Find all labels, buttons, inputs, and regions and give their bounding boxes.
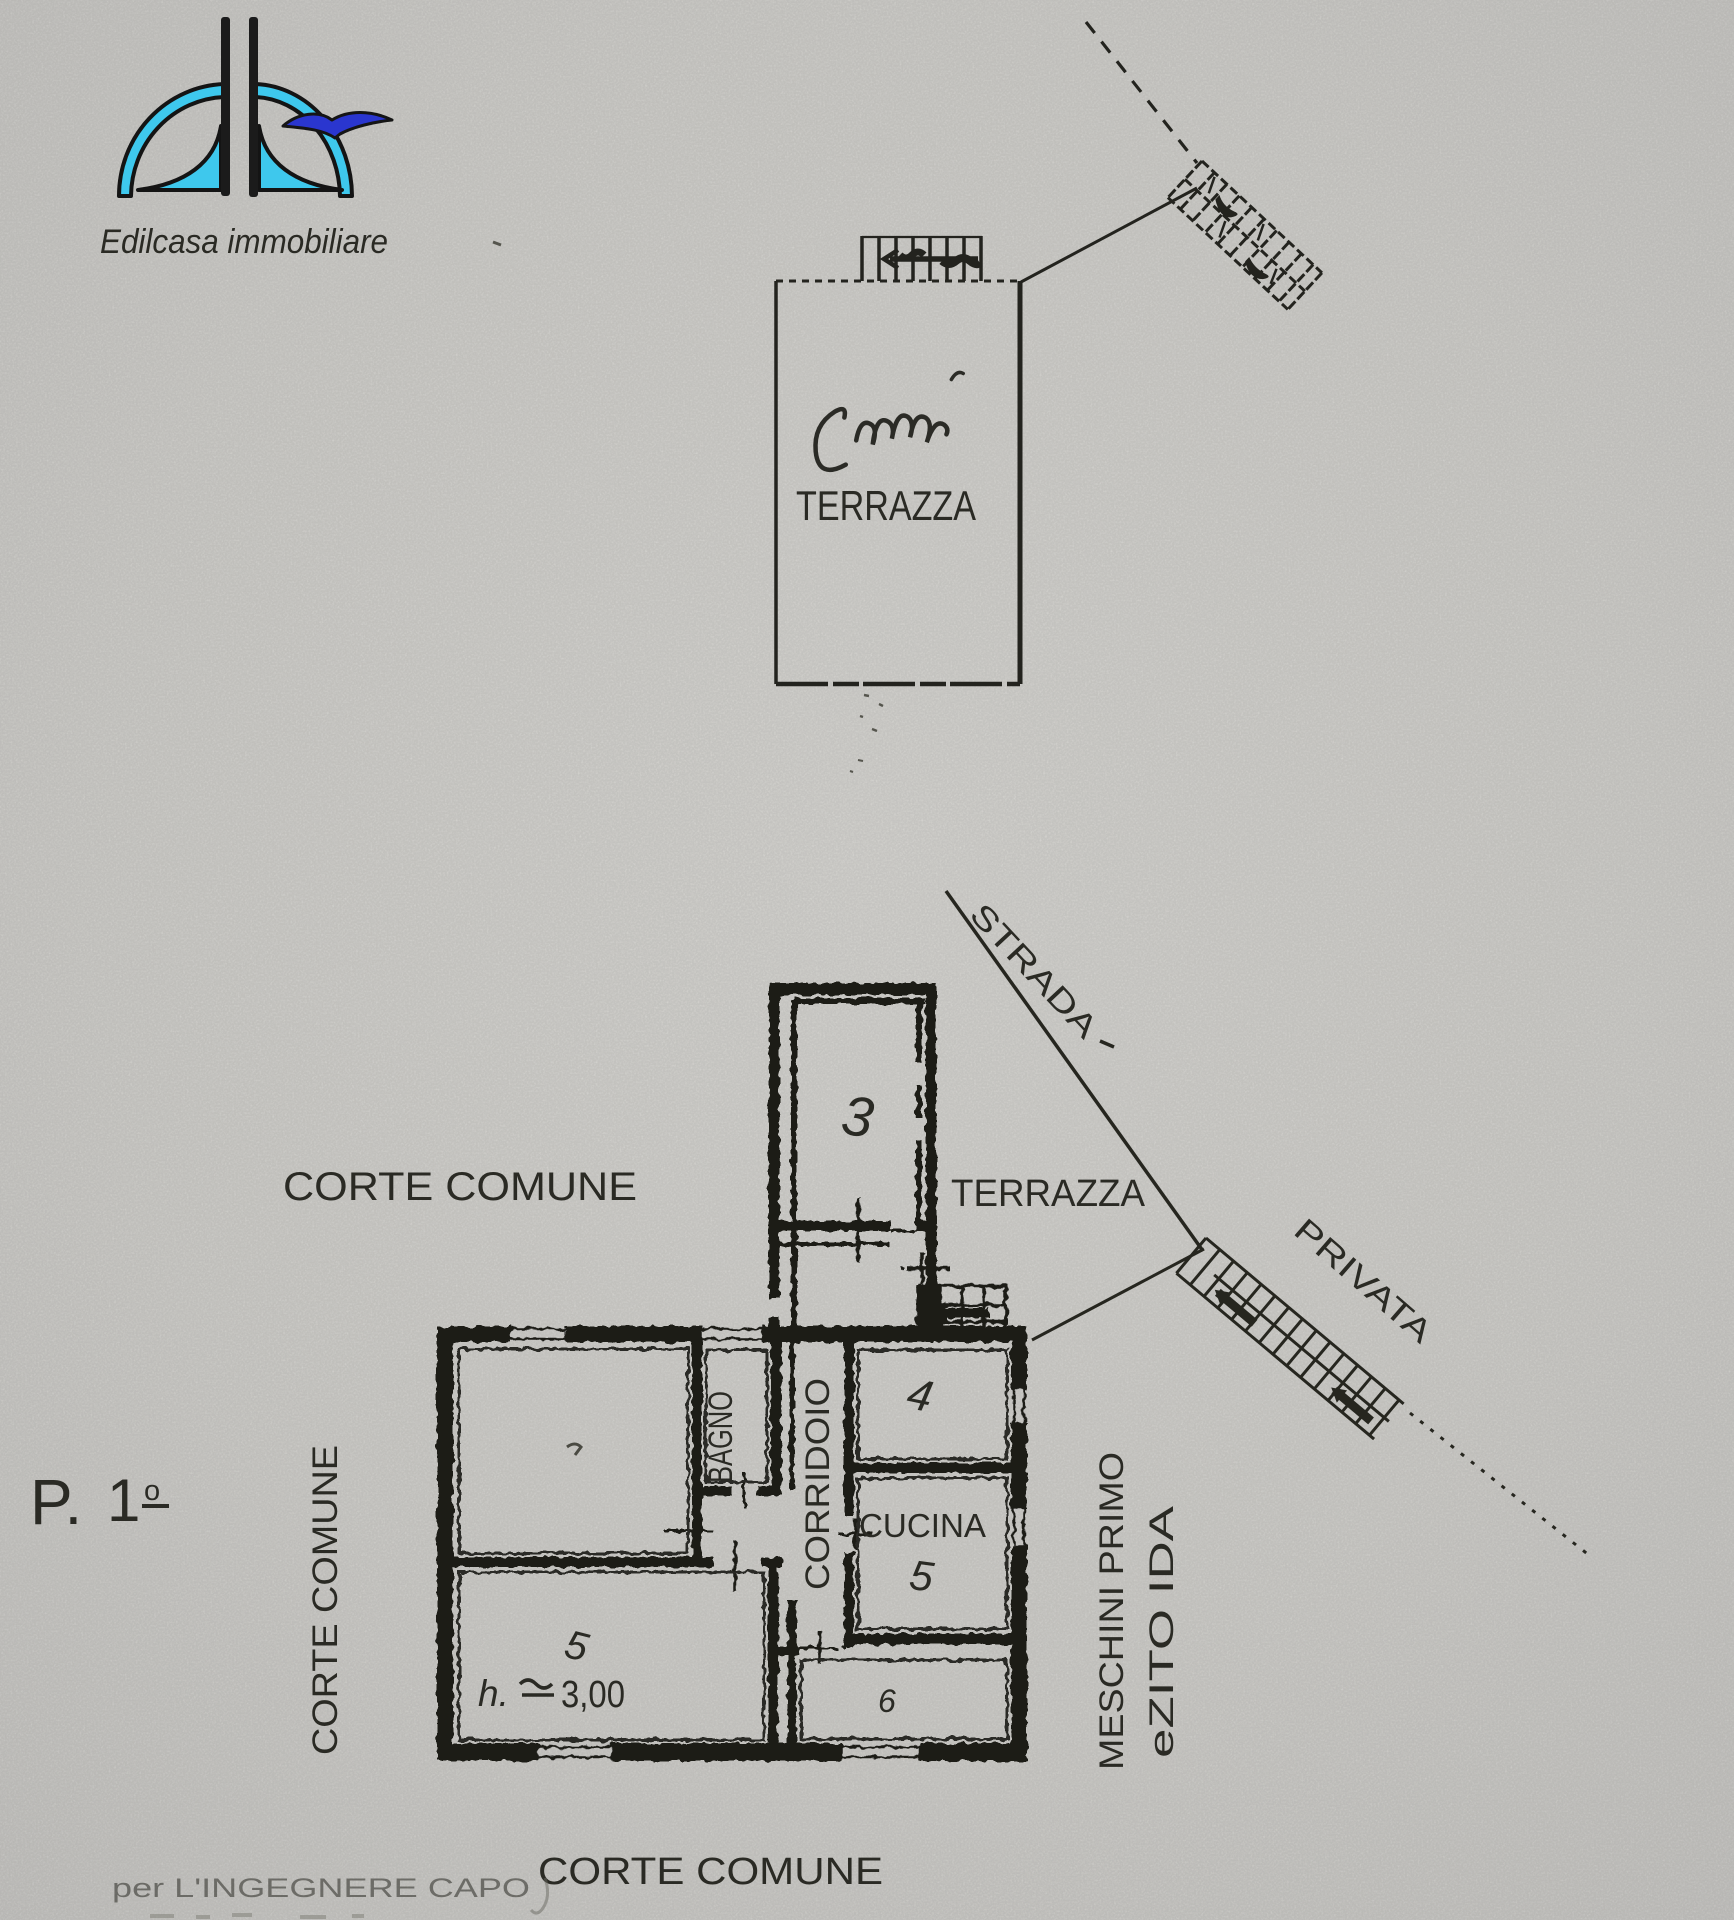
svg-text:MESCHINI PRIMO: MESCHINI PRIMO <box>1093 1452 1131 1770</box>
svg-text:1: 1 <box>107 1467 140 1534</box>
svg-text:Edilcasa immobiliare: Edilcasa immobiliare <box>100 223 388 261</box>
svg-text:TERRAZZA: TERRAZZA <box>796 482 976 529</box>
svg-text:CUCINA: CUCINA <box>859 1507 986 1544</box>
svg-text:CORTE COMUNE: CORTE COMUNE <box>283 1165 637 1209</box>
svg-text:CORRIDOIO: CORRIDOIO <box>799 1378 837 1590</box>
svg-text:o: o <box>144 1475 160 1507</box>
svg-text:6: 6 <box>878 1683 896 1719</box>
svg-text:per L'INGEGNERE CAPO: per L'INGEGNERE CAPO <box>112 1873 530 1903</box>
svg-text:h.: h. <box>478 1673 509 1714</box>
svg-text:P.: P. <box>30 1466 82 1538</box>
svg-text:CORTE COMUNE: CORTE COMUNE <box>538 1851 883 1893</box>
svg-text:3,00: 3,00 <box>561 1674 625 1716</box>
svg-text:eZITO IDA: eZITO IDA <box>1143 1506 1181 1758</box>
svg-text:CORTE COMUNE: CORTE COMUNE <box>306 1445 345 1755</box>
svg-text:BAGNO: BAGNO <box>702 1391 740 1483</box>
svg-text:TERRAZZA: TERRAZZA <box>951 1173 1146 1215</box>
